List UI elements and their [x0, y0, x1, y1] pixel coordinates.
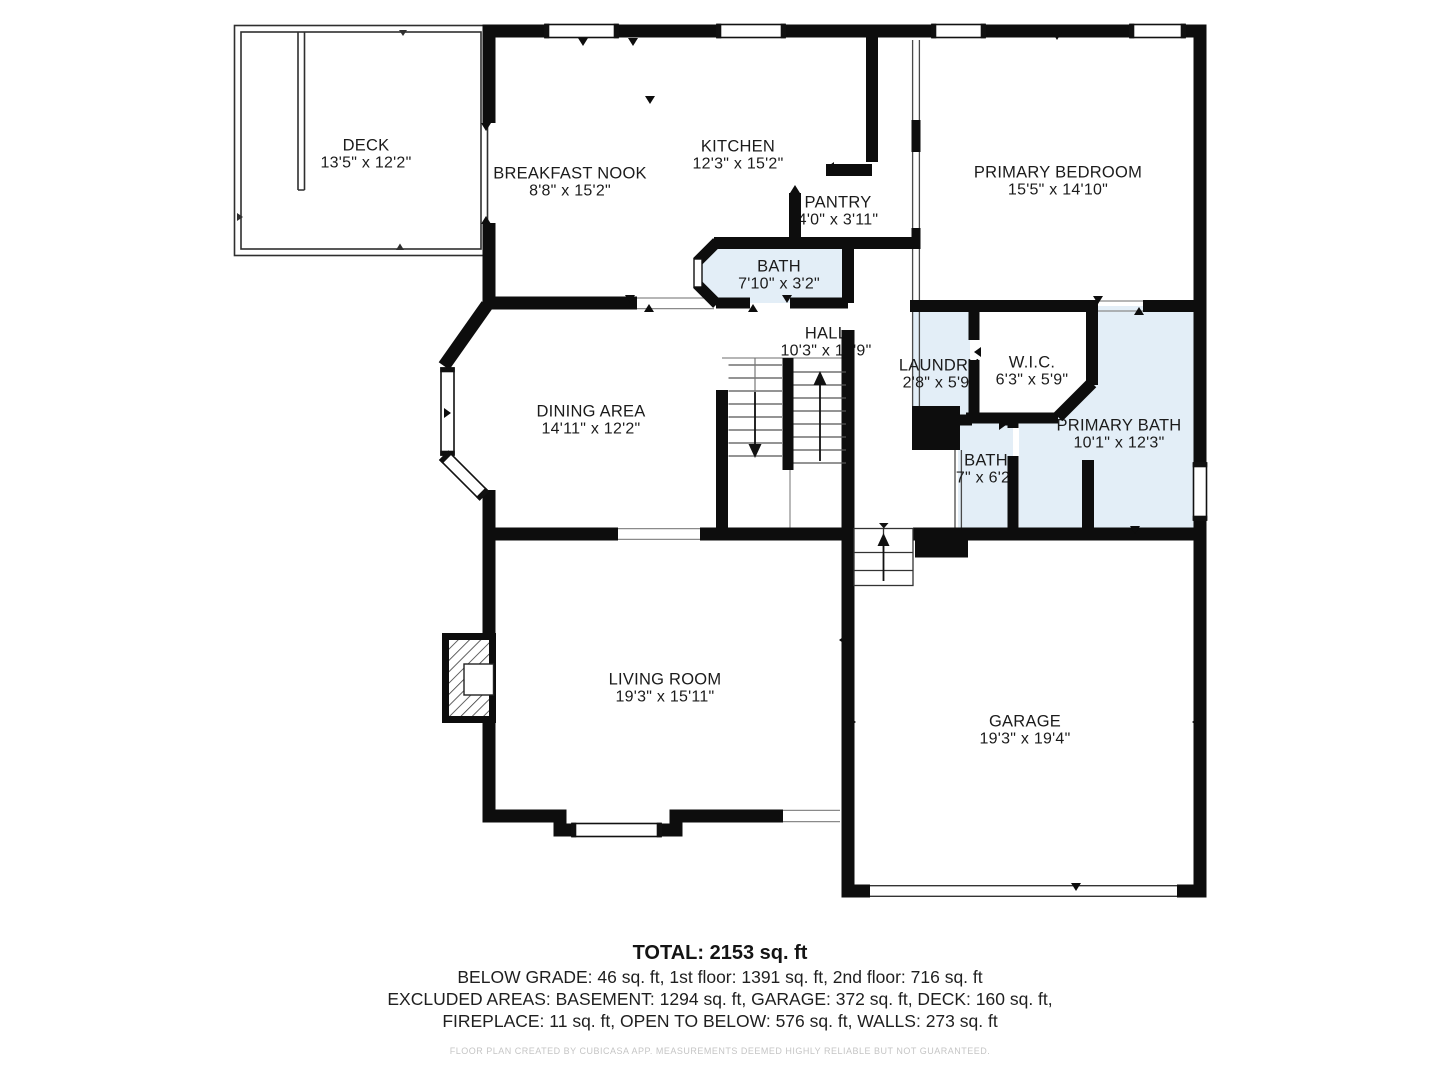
- room-name: DINING AREA: [536, 403, 645, 421]
- room-name: DECK: [343, 137, 390, 155]
- garage-door: [870, 886, 1177, 897]
- total-area: TOTAL: 2153 sq. ft: [0, 941, 1440, 966]
- room-label-wic: W.I.C. 6'3" x 5'9": [996, 354, 1069, 389]
- room-dims: 2'8" x 5'9": [903, 375, 976, 392]
- room-label-hall: HALL 10'3" x 15'9": [781, 325, 872, 360]
- room-name: GARAGE: [989, 713, 1061, 731]
- window: [441, 368, 454, 455]
- summary-line-floors: BELOW GRADE: 46 sq. ft, 1st floor: 1391 …: [0, 966, 1440, 988]
- room-dims: 8'8" x 15'2": [529, 183, 611, 200]
- summary-line-excluded: EXCLUDED AREAS: BASEMENT: 1294 sq. ft, G…: [0, 988, 1440, 1010]
- window: [932, 25, 985, 38]
- room-label-living-room: LIVING ROOM 19'3" x 15'11": [609, 671, 722, 706]
- rail-lines: [913, 40, 962, 528]
- window: [440, 452, 488, 500]
- room-label-kitchen: KITCHEN 12'3" x 15'2": [693, 138, 784, 173]
- room-label-laundry: LAUNDRY 2'8" x 5'9": [899, 357, 979, 392]
- firebox: [464, 664, 494, 695]
- window: [572, 824, 661, 837]
- room-dims: 19'3" x 15'11": [616, 689, 715, 706]
- room-name: PANTRY: [805, 194, 872, 212]
- summary-line-other: FIREPLACE: 11 sq. ft, OPEN TO BELOW: 576…: [0, 1010, 1440, 1032]
- room-name: LIVING ROOM: [609, 671, 722, 689]
- room-name: BATH: [964, 452, 1008, 470]
- disclaimer-note: FLOOR PLAN CREATED BY CUBICASA APP. MEAS…: [0, 1046, 1440, 1056]
- entry-steps: [854, 523, 913, 586]
- room-label-garage: GARAGE 19'3" x 19'4": [980, 713, 1071, 748]
- room-dims: 4'0" x 3'11": [798, 212, 879, 229]
- staircase: [729, 358, 847, 463]
- area-summary: TOTAL: 2153 sq. ft BELOW GRADE: 46 sq. f…: [0, 941, 1440, 1032]
- room-name: W.I.C.: [1009, 354, 1055, 372]
- room-dims: 6'3" x 5'9": [996, 372, 1069, 389]
- room-dims: 19'3" x 19'4": [980, 731, 1071, 748]
- room-name: LAUNDRY: [899, 357, 979, 375]
- window: [1194, 463, 1207, 520]
- room-label-deck: DECK 13'5" x 12'2": [321, 137, 412, 172]
- room-dims: 12'3" x 15'2": [693, 156, 784, 173]
- room-label-bath: BATH 7'10" x 3'2": [738, 258, 820, 293]
- window: [545, 25, 618, 38]
- room-dims: 7" x 6'2": [956, 470, 1016, 487]
- room-name: BREAKFAST NOOK: [493, 165, 647, 183]
- exterior-walls: [444, 25, 1206, 898]
- room-name: HALL: [805, 325, 847, 343]
- room-label-pantry: PANTRY 4'0" x 3'11": [798, 194, 879, 229]
- room-label-dining-area: DINING AREA 14'11" x 12'2": [536, 403, 645, 438]
- door-markers: [444, 32, 1199, 891]
- room-dims: 15'5" x 14'10": [1008, 182, 1108, 199]
- room-dims: 13'5" x 12'2": [321, 155, 412, 172]
- window: [1130, 25, 1185, 38]
- stair-down-arrow: [749, 392, 762, 458]
- window: [717, 25, 785, 38]
- room-dims: 10'1" x 12'3": [1073, 435, 1164, 452]
- room-name: KITCHEN: [701, 138, 775, 156]
- room-name: PRIMARY BATH: [1057, 417, 1182, 435]
- room-label-primary-bath: PRIMARY BATH 10'1" x 12'3": [1057, 417, 1182, 452]
- fireplace: [446, 637, 494, 720]
- room-dims: 14'11" x 12'2": [542, 421, 641, 438]
- stair-up-arrow: [814, 371, 827, 461]
- floor-plan-page: DECK 13'5" x 12'2" BREAKFAST NOOK 8'8" x…: [0, 0, 1440, 1080]
- room-dims: 10'3" x 15'9": [781, 343, 872, 360]
- room-label-bath-2: BATH 7" x 6'2": [956, 452, 1016, 487]
- window: [694, 259, 702, 287]
- room-name: BATH: [757, 258, 801, 276]
- room-label-primary-bedroom: PRIMARY BEDROOM 15'5" x 14'10": [974, 164, 1142, 199]
- room-label-breakfast-nook: BREAKFAST NOOK 8'8" x 15'2": [493, 165, 647, 200]
- room-dims: 7'10" x 3'2": [738, 276, 820, 293]
- room-name: PRIMARY BEDROOM: [974, 164, 1142, 182]
